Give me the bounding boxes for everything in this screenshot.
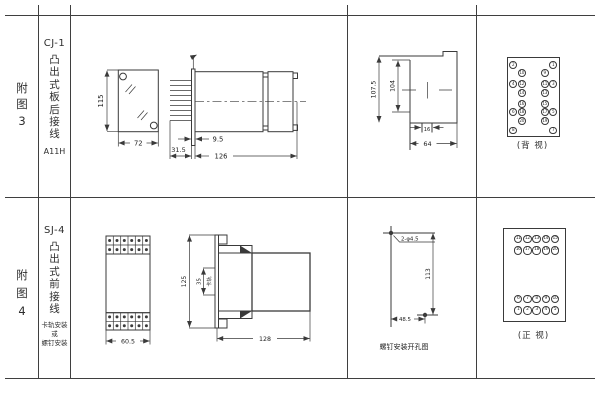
mounting-plate — [215, 235, 219, 328]
terminal-12: 12 — [518, 80, 526, 88]
cj1-front-view: 115 72 — [97, 70, 158, 147]
figure3-label-char: 3 — [6, 113, 38, 129]
figure3-label: 附 图 3 — [6, 80, 38, 129]
figure4-label: 附 图 4 — [6, 266, 38, 320]
orientation-arrow-icon — [193, 55, 196, 69]
figure4-label-char: 图 — [6, 284, 38, 302]
terminal-19: 19 — [541, 117, 549, 125]
model-name: CJ-1 — [39, 38, 70, 49]
terminal-9: 9 — [542, 295, 550, 303]
terminal-2: 2 — [509, 61, 517, 69]
terminal-20: 20 — [518, 117, 526, 125]
mounting-plate — [192, 69, 196, 146]
flange-wedge-icon — [240, 246, 252, 254]
terminal-4: 4 — [509, 80, 517, 88]
mounting-notes: 卡轨安装 或 螺钉安装 — [39, 321, 70, 348]
table-border-bottom — [5, 378, 595, 379]
screw-hole-icon — [120, 73, 127, 80]
dim-label: 35 — [197, 278, 203, 285]
terminal-grid-bottom: 67891012345 — [504, 229, 565, 321]
dim-label: 113 — [425, 268, 432, 280]
mount-type-vertical-text: 凸 出 式 板 后 接 线 — [39, 54, 70, 141]
dim-label: 48.5 — [399, 317, 411, 323]
mounting-hole-icon — [389, 231, 393, 235]
sj4-drill-template: 2-φ4.5 113 48.5 螺钉安装开孔图 — [347, 197, 476, 378]
dim-label: 60.5 — [121, 338, 135, 345]
dim-label: 128 — [259, 336, 271, 343]
terminal-5: 5 — [551, 306, 559, 314]
terminal-10: 10 — [518, 69, 526, 77]
hole-spec-label: 2-φ4.5 — [401, 237, 419, 243]
figure4-type-column: SJ-4 凸 出 式 前 接 线 卡轨安装 或 螺钉安装 — [39, 225, 70, 348]
table-border-v4 — [476, 5, 477, 378]
terminal-9: 9 — [541, 69, 549, 77]
terminal-18: 18 — [518, 108, 526, 116]
terminal-7: 7 — [549, 127, 557, 135]
terminal-16: 16 — [518, 100, 526, 108]
terminal-view-caption: (正 视) — [481, 329, 586, 341]
mount-type-vertical-text: 凸 出 式 前 接 线 — [39, 241, 70, 315]
terminal-4: 4 — [542, 306, 550, 314]
terminal-10: 10 — [551, 295, 559, 303]
dim-label: 104 — [390, 80, 397, 92]
relay-body — [252, 253, 310, 311]
figure4-label-char: 4 — [6, 302, 38, 320]
terminal-view-caption: (背 视) — [480, 139, 585, 151]
cj1-panel-cutout: 107.5 104 16 64 — [347, 15, 476, 197]
figure3-label-char: 附 — [6, 80, 38, 96]
dim-label: 9.5 — [213, 136, 224, 144]
terminal-3: 3 — [532, 306, 540, 314]
dim-label: 31.5 — [171, 146, 185, 154]
relay-body — [106, 254, 150, 313]
terminal-13: 13 — [541, 89, 549, 97]
model-code: A11H — [39, 147, 70, 156]
terminal-15: 15 — [541, 100, 549, 108]
sj4-dimension-drawings: 60.5 125 35 卡轨 128 — [70, 197, 347, 378]
terminal-8: 8 — [509, 127, 517, 135]
drill-caption: 螺钉安装开孔图 — [380, 342, 429, 351]
cj1-terminal-rear-view: 2110941211314131615618175201987 — [507, 57, 560, 137]
dim-label: 64 — [423, 140, 431, 148]
dim-label: 16 — [424, 127, 431, 133]
terminal-5: 5 — [549, 108, 557, 116]
terminal-11: 11 — [541, 80, 549, 88]
terminal-8: 8 — [532, 295, 540, 303]
terminal-3: 3 — [549, 80, 557, 88]
dim-label: 125 — [181, 276, 188, 288]
terminal-1: 1 — [549, 61, 557, 69]
figure3-label-char: 图 — [6, 96, 38, 112]
glass-hatch-icon — [126, 85, 148, 121]
rail-label: 卡轨 — [206, 276, 213, 286]
terminal-7: 7 — [523, 295, 531, 303]
figure3-type-column: CJ-1 凸 出 式 板 后 接 线 A11H — [39, 38, 70, 156]
terminal-2: 2 — [523, 306, 531, 314]
terminal-6: 6 — [509, 108, 517, 116]
drawing-sheet: 附 图 3 CJ-1 凸 出 式 板 后 接 线 A11H 115 72 — [0, 0, 600, 400]
cj1-dimension-drawings: 115 72 9.5 31.5 126 — [70, 15, 347, 197]
cj1-side-view: 9.5 31.5 126 — [170, 55, 306, 161]
flange-wedge-icon — [240, 311, 252, 319]
figure4-label-char: 附 — [6, 266, 38, 284]
terminal-grid: 2110941211314131615618175201987 — [508, 58, 559, 136]
terminal-pins-icon — [170, 81, 192, 121]
dim-label: 107.5 — [371, 81, 378, 99]
terminal-1: 1 — [514, 306, 522, 314]
sj4-terminal-front-view: 11121314151617181920 67891012345 — [503, 228, 566, 322]
screw-hole-icon — [150, 122, 157, 129]
terminal-6: 6 — [514, 295, 522, 303]
terminal-14: 14 — [518, 89, 526, 97]
dim-label: 115 — [97, 95, 105, 108]
sj4-side-view: 125 35 卡轨 128 — [181, 235, 310, 343]
dim-label: 126 — [215, 152, 228, 160]
model-name: SJ-4 — [39, 225, 70, 236]
dim-label: 72 — [134, 139, 143, 147]
terminal-17: 17 — [541, 108, 549, 116]
sj4-front-view: 60.5 — [106, 236, 150, 345]
